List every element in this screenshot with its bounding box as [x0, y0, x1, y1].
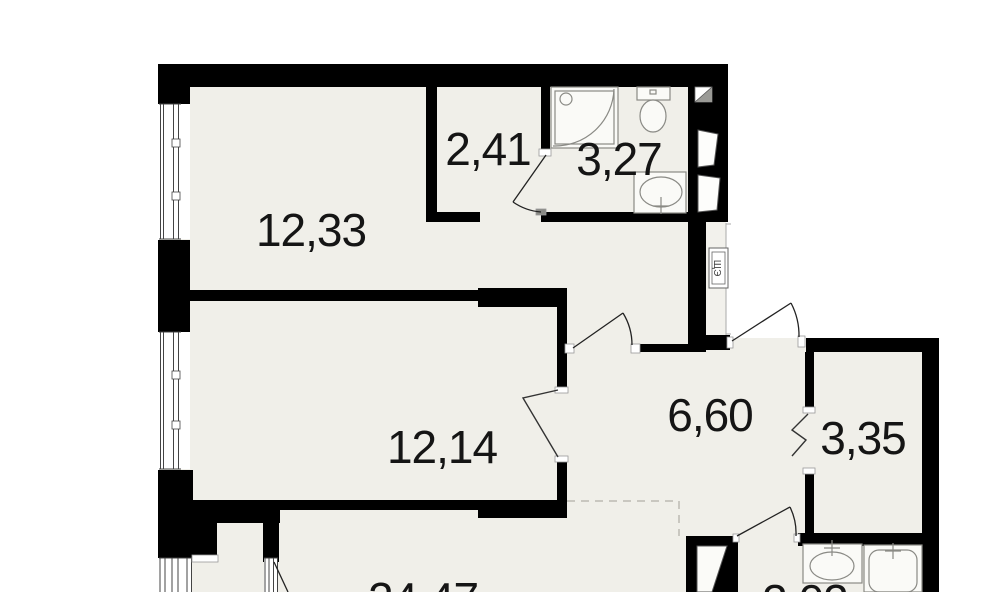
balcony-window-right: [264, 558, 278, 592]
electrical-panel-label: ЩЭ: [711, 260, 722, 277]
floor-plan: ЩЭ: [0, 0, 1000, 592]
room-label-3-35: 3,35: [820, 412, 906, 464]
bathtub-icon: [864, 543, 922, 592]
room-label-3-27: 3,27: [576, 133, 662, 185]
room-label-12-14: 12,14: [387, 421, 498, 473]
electrical-panel-icon: ЩЭ: [709, 248, 728, 288]
room-label-6-60: 6,60: [667, 389, 753, 441]
room-label-2-41: 2,41: [445, 123, 531, 175]
vent-shaft-icon: [698, 175, 720, 212]
balcony-window-left: [158, 558, 192, 592]
hatch-square-icon: [695, 87, 712, 102]
room-label-24-47: 24,47: [368, 573, 478, 592]
room-label-12-33: 12,33: [256, 204, 366, 256]
window-mid-left: [158, 332, 190, 469]
floor-plan-svg: ЩЭ: [0, 0, 1000, 592]
room-label-3-02: 3,02: [762, 575, 848, 592]
window-top-left: [158, 104, 190, 239]
